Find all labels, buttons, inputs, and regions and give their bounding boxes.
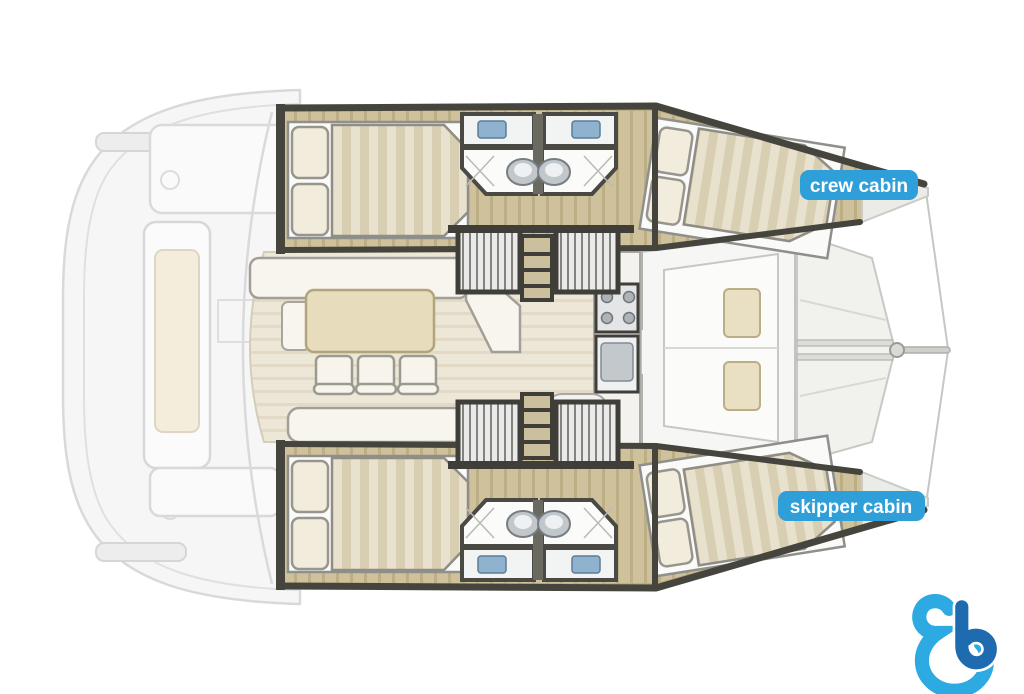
companionway-stairs-port <box>448 225 634 300</box>
bowsprit <box>890 192 950 504</box>
aft-cabin-starboard-bed <box>288 456 468 572</box>
b-watermark-logo <box>919 601 990 691</box>
toilet <box>572 121 600 138</box>
companionway-stairs-starboard <box>448 394 634 469</box>
toilet <box>572 556 600 573</box>
cockpit-cushion <box>724 362 760 410</box>
dining-table <box>306 290 434 352</box>
catamaran-floor-plan: crew cabin skipper cabin <box>0 0 1024 694</box>
cockpit-cushion <box>724 289 760 337</box>
bow-trampoline <box>797 233 895 463</box>
skipper-cabin-label: skipper cabin <box>790 497 913 518</box>
stern-bench-cushion <box>155 250 199 432</box>
skipper-cabin-badge: skipper cabin <box>778 491 925 521</box>
boat-floor-plan-page: crew cabin skipper cabin <box>0 0 1024 694</box>
bathroom-starboard <box>462 500 616 580</box>
dining-chairs <box>314 356 438 394</box>
forward-cockpit <box>641 233 795 463</box>
toilet <box>478 121 506 138</box>
bathroom-port <box>462 114 616 194</box>
toilet <box>478 556 506 573</box>
crew-cabin-label: crew cabin <box>810 176 908 197</box>
crew-cabin-badge: crew cabin <box>800 170 918 200</box>
aft-cabin-port-bed <box>288 122 468 238</box>
